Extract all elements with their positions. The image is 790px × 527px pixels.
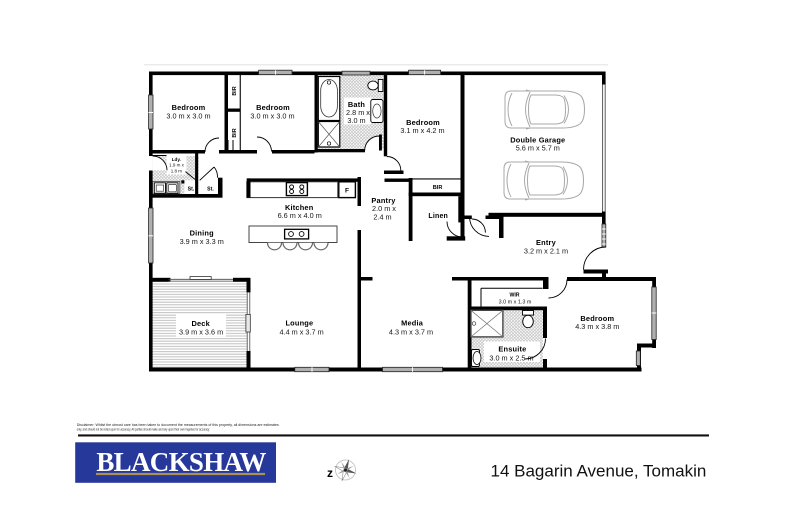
svg-text:1.9 m x: 1.9 m x (169, 163, 185, 168)
svg-text:Media: Media (401, 319, 424, 328)
svg-text:3.0 m x 1.3 m: 3.0 m x 1.3 m (499, 300, 532, 306)
svg-text:2.4 m: 2.4 m (373, 213, 391, 222)
svg-text:Disclaimer: Whilst the utmost: Disclaimer: Whilst the utmost care has b… (77, 423, 279, 427)
svg-text:4.3 m x 3.7 m: 4.3 m x 3.7 m (389, 328, 433, 337)
svg-text:3.9 m x 3.6 m: 3.9 m x 3.6 m (179, 328, 223, 337)
svg-text:BIR: BIR (232, 86, 238, 95)
svg-text:3.9 m x 3.3 m: 3.9 m x 3.3 m (180, 237, 224, 246)
svg-text:14 Bagarin Avenue, Tomakin: 14 Bagarin Avenue, Tomakin (491, 462, 707, 481)
svg-text:Ldy.: Ldy. (172, 157, 181, 162)
svg-text:1.8 m: 1.8 m (171, 168, 183, 173)
svg-text:4.3 m x 3.8 m: 4.3 m x 3.8 m (575, 322, 619, 331)
svg-text:3.0 m x 3.0 m: 3.0 m x 3.0 m (250, 112, 294, 121)
svg-text:BIR: BIR (232, 128, 238, 137)
svg-text:St.: St. (207, 186, 214, 192)
svg-text:4.4 m x 3.7 m: 4.4 m x 3.7 m (279, 328, 323, 337)
svg-text:3.2 m x 2.1 m: 3.2 m x 2.1 m (524, 246, 568, 255)
svg-text:z: z (327, 466, 333, 480)
svg-text:3.0 m: 3.0 m (347, 116, 365, 125)
svg-text:Ensuite: Ensuite (498, 345, 526, 354)
svg-text:Lounge: Lounge (285, 319, 313, 328)
svg-text:5.6 m x 5.7 m: 5.6 m x 5.7 m (516, 144, 560, 153)
svg-text:Linen: Linen (428, 213, 448, 220)
svg-text:WIR: WIR (509, 293, 519, 299)
svg-text:St.: St. (188, 186, 195, 192)
svg-text:3.1 m x 4.2 m: 3.1 m x 4.2 m (400, 126, 444, 135)
svg-text:F: F (345, 188, 349, 195)
svg-text:BLACKSHAW: BLACKSHAW (96, 447, 266, 477)
svg-text:3.0 m x 2.5 m: 3.0 m x 2.5 m (489, 354, 533, 363)
svg-text:3.0 m x 3.0 m: 3.0 m x 3.0 m (166, 112, 210, 121)
svg-text:6.6 m x 4.0 m: 6.6 m x 4.0 m (278, 211, 322, 220)
svg-text:BIR: BIR (433, 185, 443, 191)
svg-text:only, and should not be relied: only, and should not be relied upon for … (77, 428, 210, 432)
